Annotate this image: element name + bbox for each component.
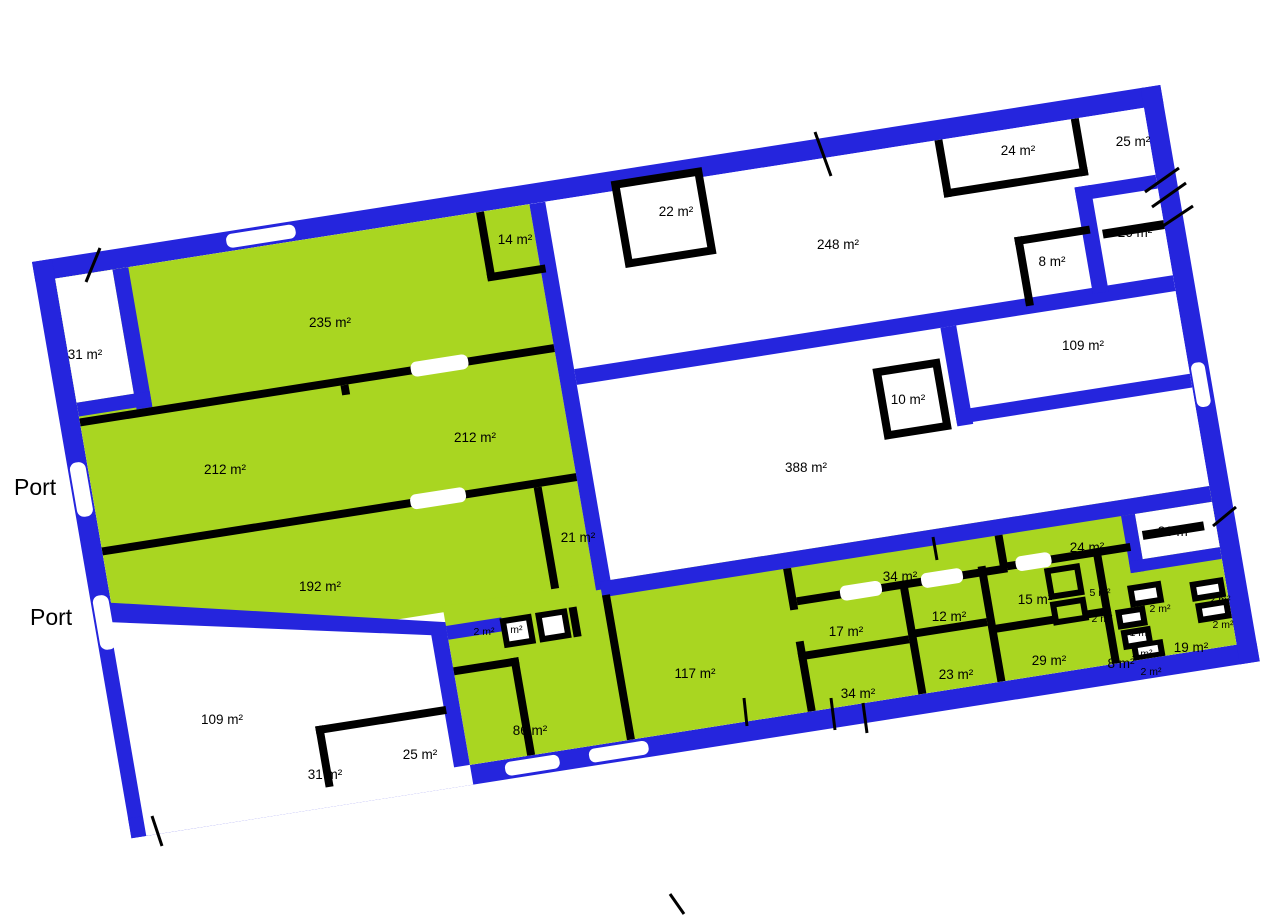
room-label-12: 12 m² bbox=[932, 609, 967, 624]
room-label-24-top: 24 m² bbox=[1001, 143, 1036, 158]
room-label-2-white-mid: 2 m² bbox=[1150, 603, 1172, 615]
room-label-24-corridor: 24 m² bbox=[1070, 540, 1105, 555]
room-label-192: 192 m² bbox=[299, 579, 342, 594]
room-label-2-right-a: 2 m² bbox=[1210, 594, 1232, 606]
room-label-34-corridor: 34 m² bbox=[883, 569, 918, 584]
room-label-26-lower: 26 m² bbox=[1158, 524, 1193, 539]
room-label-2-right-b: 2 m² bbox=[1213, 619, 1235, 631]
room-label-109-right: 109 m² bbox=[1062, 338, 1105, 353]
room-label-2-white-bottom: 2 m² bbox=[1141, 666, 1163, 678]
room-label-25-green: 25 m² bbox=[403, 747, 438, 762]
room-label-2-box-b: 2 m² bbox=[502, 624, 524, 636]
room-label-23: 23 m² bbox=[939, 667, 974, 682]
room-label-235: 235 m² bbox=[309, 315, 352, 330]
room-label-8-upper: 8 m² bbox=[1039, 254, 1067, 269]
room-label-212-right: 212 m² bbox=[454, 430, 497, 445]
room-label-86: 86 m² bbox=[513, 723, 548, 738]
room-label-1-a: 1 m² bbox=[1130, 627, 1152, 639]
room-label-117: 117 m² bbox=[674, 666, 716, 681]
port-label-2: Port bbox=[30, 604, 73, 630]
floor-plan-canvas: 31 m²235 m²14 m²212 m²212 m²192 m²21 m²2… bbox=[0, 0, 1261, 917]
room-label-8-small: 8 m² bbox=[1108, 656, 1136, 671]
room-label-34-lower: 34 m² bbox=[841, 686, 876, 701]
room-label-2-box-a: 2 m² bbox=[474, 626, 496, 638]
room-label-26-upper: 26 m² bbox=[1118, 225, 1153, 240]
floor-plan-page: 31 m²235 m²14 m²212 m²212 m²192 m²21 m²2… bbox=[0, 0, 1261, 917]
room-label-248: 248 m² bbox=[817, 237, 860, 252]
room-label-25-top: 25 m² bbox=[1116, 134, 1151, 149]
room-label-31-top-left: 31 m² bbox=[68, 347, 103, 362]
room-label-212-left: 212 m² bbox=[204, 462, 247, 477]
room-label-19: 19 m² bbox=[1174, 640, 1209, 655]
room-label-2-green: 2 m² bbox=[1092, 613, 1114, 625]
room-label-15: 15 m² bbox=[1018, 592, 1053, 607]
room-label-17: 17 m² bbox=[829, 624, 864, 639]
room-label-22: 22 m² bbox=[659, 204, 694, 219]
room-label-14: 14 m² bbox=[498, 232, 533, 247]
room-label-10: 10 m² bbox=[891, 392, 926, 407]
room-label-29: 29 m² bbox=[1032, 653, 1067, 668]
room-label-109-left: 109 m² bbox=[201, 712, 244, 727]
port-label-1: Port bbox=[14, 474, 57, 500]
room-label-1-b: 1 m² bbox=[1132, 648, 1154, 660]
room-label-21: 21 m² bbox=[561, 530, 596, 545]
room-label-31-nested: 31 m² bbox=[308, 767, 343, 782]
room-label-388: 388 m² bbox=[785, 460, 828, 475]
room-label-5: 5 m² bbox=[1090, 587, 1112, 599]
